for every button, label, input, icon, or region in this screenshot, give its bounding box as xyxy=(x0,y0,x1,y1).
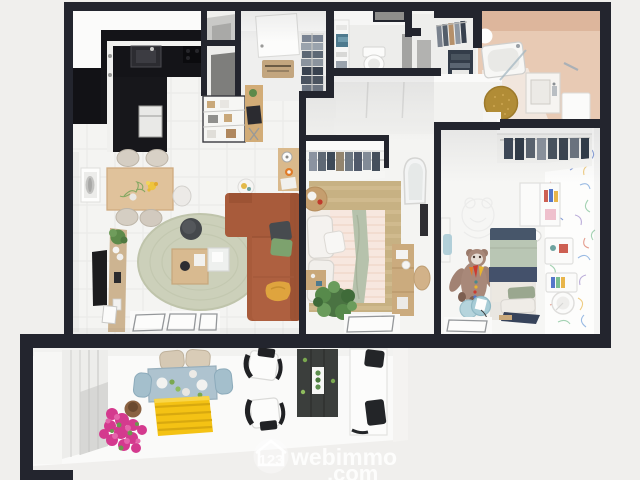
svg-text:123: 123 xyxy=(258,452,283,469)
svg-text:.com: .com xyxy=(327,461,378,480)
